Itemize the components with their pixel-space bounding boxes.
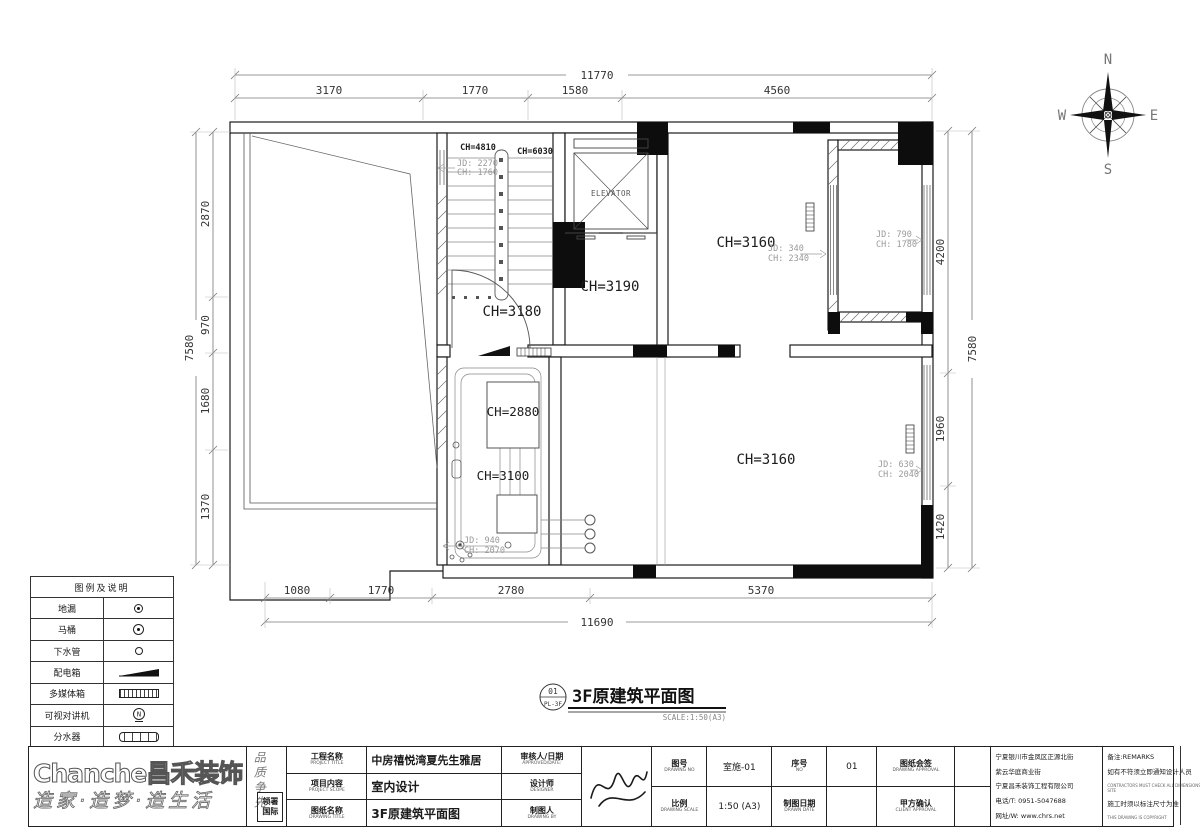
manifold-icon xyxy=(104,727,173,747)
remarks-title: 备注:REMARKS xyxy=(1107,753,1200,761)
legend-label: 马桶 xyxy=(31,619,104,639)
terrace-railing xyxy=(244,133,437,509)
compass-rose: N E S W xyxy=(1058,52,1158,178)
dim-top-1: 3170 xyxy=(316,84,343,97)
remark-line1: 如有不符须立即通知设计人员 xyxy=(1107,768,1200,776)
toilet-icon xyxy=(104,619,173,639)
stamp-scale: SCALE:1:50(A3) xyxy=(663,713,726,722)
company-seal: 领署 国际 xyxy=(257,792,283,822)
dim-left-total: 7580 xyxy=(183,335,196,362)
sheet-border-line xyxy=(1180,746,1181,825)
side-slogan-cell: 品质争先 领署 国际 xyxy=(247,747,287,826)
no-scale-labels-col: 图号 DRAWING NO 比例 DRAWING SCALE xyxy=(652,747,707,826)
company-slogan: 造家·造梦·造生活 xyxy=(33,788,242,814)
dim-top-3: 1580 xyxy=(562,84,589,97)
dim-bottom-2: 1770 xyxy=(368,584,395,597)
project-scope-label: 项目内容 PROJECT SCOPE xyxy=(287,774,366,801)
compass-n: N xyxy=(1104,52,1112,68)
floor-drain-icon xyxy=(104,598,173,618)
legend-row-floor-drain: 地漏 xyxy=(31,598,173,619)
people-labels-col: 审核人/日期 APPROVED/DATE: 设计师 DESIGNER 制图人 D… xyxy=(502,747,582,826)
dim-right-3: 1420 xyxy=(934,514,947,541)
dim-right-2: 1960 xyxy=(934,416,947,443)
scale-label: 比例 DRAWING SCALE xyxy=(652,787,706,826)
dim-right-total: 7580 xyxy=(966,336,979,363)
room-label-mech-a: CH=2880 xyxy=(487,404,540,419)
address-line3: 宁夏昌禾装饰工程有限公司 xyxy=(995,782,1098,790)
media-box-symbol-tr xyxy=(806,203,814,231)
remark-line2: 施工时须以标注尺寸为准 xyxy=(1107,800,1200,808)
project-title-label: 工程名称 PROJECT TITLE xyxy=(287,747,366,774)
company-address-cell: 宁夏银川市金凤区正源北街 紫云华庭商业街 宁夏昌禾装饰工程有限公司 电话/T: … xyxy=(991,747,1103,826)
title-block: Chanche昌禾装饰 造家·造梦·造生活 品质争先 领署 国际 工程名称 PR… xyxy=(28,746,1174,827)
client-approval-empty xyxy=(955,787,990,826)
intercom-icon: N xyxy=(104,705,173,725)
drain-pipe-icon xyxy=(104,641,173,661)
floor-plan-svg: CH=3180 CH=3190 CH=3160 CH=3160 CH=2880 … xyxy=(0,0,1200,740)
company-phone: 电话/T: 0951-5047688 xyxy=(995,797,1098,805)
compass-e: E xyxy=(1150,108,1158,124)
w4-ch: CH: 2040 xyxy=(878,470,919,480)
room-label-mech-b: CH=3100 xyxy=(477,468,530,483)
dim-bottom-3: 2780 xyxy=(498,584,525,597)
dim-bottom-4: 5370 xyxy=(748,584,775,597)
approved-label: 审核人/日期 APPROVED/DATE: xyxy=(502,747,581,774)
drawnby-label: 制图人 DRAWING BY xyxy=(502,800,581,826)
dim-top-4: 4560 xyxy=(764,84,791,97)
legend-label: 可视对讲机 xyxy=(31,705,104,725)
drawing-title-label: 图纸名称 DRAWING TITLE xyxy=(287,800,366,826)
seq-label: 序号 NO xyxy=(772,747,826,787)
legend-label: 地漏 xyxy=(31,598,104,618)
power-box-symbol xyxy=(478,346,510,356)
scale-value: 1:50 (A3) xyxy=(707,787,771,826)
compass-s: S xyxy=(1104,162,1112,178)
field-labels-col: 工程名称 PROJECT TITLE 项目内容 PROJECT SCOPE 图纸… xyxy=(287,747,367,826)
w1-ch: CH: 1760 xyxy=(457,168,498,178)
no-scale-values-col: 室施-01 1:50 (A3) xyxy=(707,747,772,826)
legend-label: 多媒体箱 xyxy=(31,684,104,704)
legend-title: 图例及说明 xyxy=(31,577,173,598)
media-box-icon xyxy=(104,684,173,704)
w3-ch: CH: 1780 xyxy=(876,240,917,250)
legend-row-intercom: 可视对讲机 N xyxy=(31,705,173,726)
project-scope-value: 室内设计 xyxy=(367,774,501,801)
power-box-icon xyxy=(104,662,173,682)
legend-row-manifold: 分水器 xyxy=(31,727,173,747)
riser-pipe-circles xyxy=(585,515,595,553)
seq-date-labels-col: 序号 NO 制图日期 DRAWN DATE xyxy=(772,747,827,826)
w5-jd: JD: 940 xyxy=(464,536,500,546)
designer-signature xyxy=(585,756,649,818)
date-label: 制图日期 DRAWN DATE xyxy=(772,787,826,826)
seq-value: 01 xyxy=(827,747,876,787)
stamp-title: 3F原建筑平面图 xyxy=(572,686,694,707)
company-website: 网址/W: www.chrs.net xyxy=(995,812,1098,820)
w3-jd: JD: 790 xyxy=(876,230,912,240)
elevator-label: ELEVATOR xyxy=(591,189,631,198)
w2-ch: CH: 2340 xyxy=(768,254,809,264)
stamp-number: 01 xyxy=(548,687,558,696)
stair-ch1-label: CH=4810 xyxy=(460,143,496,153)
seq-date-values-col: 01 xyxy=(827,747,877,826)
legend-row-media-box: 多媒体箱 xyxy=(31,684,173,705)
drawing-no-label: 图号 DRAWING NO xyxy=(652,747,706,787)
w2-jd: JD: 340 xyxy=(768,244,804,254)
approval-labels-col: 图纸会签 DRAWING APPROVAL 甲方确认 CLIENT APPROV… xyxy=(877,747,955,826)
room-label-hall: CH=3180 xyxy=(482,304,541,320)
address-line1: 宁夏银川市金凤区正源北街 xyxy=(995,753,1098,761)
field-values-col: 中房禧悦湾夏先生雅居 室内设计 3F原建筑平面图 xyxy=(367,747,502,826)
remark-line2-en: THIS DRAWING IS COPYRIGHT xyxy=(1107,815,1200,820)
media-box-symbol-wall xyxy=(517,348,551,356)
signature-cell xyxy=(582,747,652,826)
legend-label: 配电箱 xyxy=(31,662,104,682)
legend-row-power-box: 配电箱 xyxy=(31,662,173,683)
media-box-symbol-br xyxy=(906,425,914,453)
legend-row-toilet: 马桶 xyxy=(31,619,173,640)
dim-left-3: 1680 xyxy=(199,388,212,415)
designer-label: 设计师 DESIGNER xyxy=(502,774,581,801)
legend-label: 下水管 xyxy=(31,641,104,661)
stair-ch2-label: CH=6030 xyxy=(517,147,553,157)
roof-slope-line xyxy=(252,136,437,468)
remarks-cell: 备注:REMARKS 如有不符须立即通知设计人员 CONTRACTORS MUS… xyxy=(1103,747,1200,826)
dim-top-2: 1770 xyxy=(462,84,489,97)
dim-right-1: 4200 xyxy=(934,239,947,266)
w5-ch: CH: 2070 xyxy=(464,546,505,556)
drawing-approval-empty xyxy=(955,747,990,787)
company-logo: Chanche昌禾装饰 xyxy=(33,760,242,788)
dim-left-4: 1370 xyxy=(199,494,212,521)
room-label-bottom: CH=3160 xyxy=(736,452,795,468)
room-label-top-right: CH=3160 xyxy=(716,235,775,251)
dim-top-total: 11770 xyxy=(580,69,613,82)
drawing-sheet: CH=3180 CH=3190 CH=3160 CH=3160 CH=2880 … xyxy=(0,0,1200,833)
legend-box: 图例及说明 地漏 马桶 下水管 配电箱 多媒体箱 可视对讲机 N 分水器 xyxy=(30,576,174,748)
drawing-approval-label: 图纸会签 DRAWING APPROVAL xyxy=(877,747,954,787)
dim-left-2: 970 xyxy=(199,315,212,335)
svg-text:N: N xyxy=(136,711,140,719)
approval-empty-col xyxy=(955,747,991,826)
remark-line1-en: CONTRACTORS MUST CHECK ALL DIMENSIONS ON… xyxy=(1107,783,1200,793)
address-line2: 紫云华庭商业街 xyxy=(995,768,1098,776)
dim-bottom-total: 11690 xyxy=(580,616,613,629)
company-logo-cell: Chanche昌禾装饰 造家·造梦·造生活 xyxy=(29,747,247,826)
client-approval-label: 甲方确认 CLIENT APPROVAL xyxy=(877,787,954,826)
date-value-empty xyxy=(827,787,876,826)
dim-bottom-1: 1080 xyxy=(284,584,311,597)
project-title-value: 中房禧悦湾夏先生雅居 xyxy=(367,747,501,774)
drawing-no-value: 室施-01 xyxy=(707,747,771,787)
stamp-code: PL-3F xyxy=(544,701,562,708)
w4-jd: JD: 630 xyxy=(878,460,914,470)
compass-w: W xyxy=(1058,108,1067,124)
legend-row-drain-pipe: 下水管 xyxy=(31,641,173,662)
dim-left-1: 2870 xyxy=(199,201,212,228)
room-label-lobby: CH=3190 xyxy=(580,279,639,295)
seal-line1: 领署 xyxy=(262,797,278,807)
walls xyxy=(230,122,933,600)
drawing-title-stamp: 01 PL-3F 3F原建筑平面图 SCALE:1:50(A3) xyxy=(540,684,726,722)
legend-label: 分水器 xyxy=(31,727,104,747)
drawing-title-value: 3F原建筑平面图 xyxy=(367,800,501,826)
floor-divider-lines xyxy=(657,357,665,565)
seal-line2: 国际 xyxy=(262,807,278,817)
